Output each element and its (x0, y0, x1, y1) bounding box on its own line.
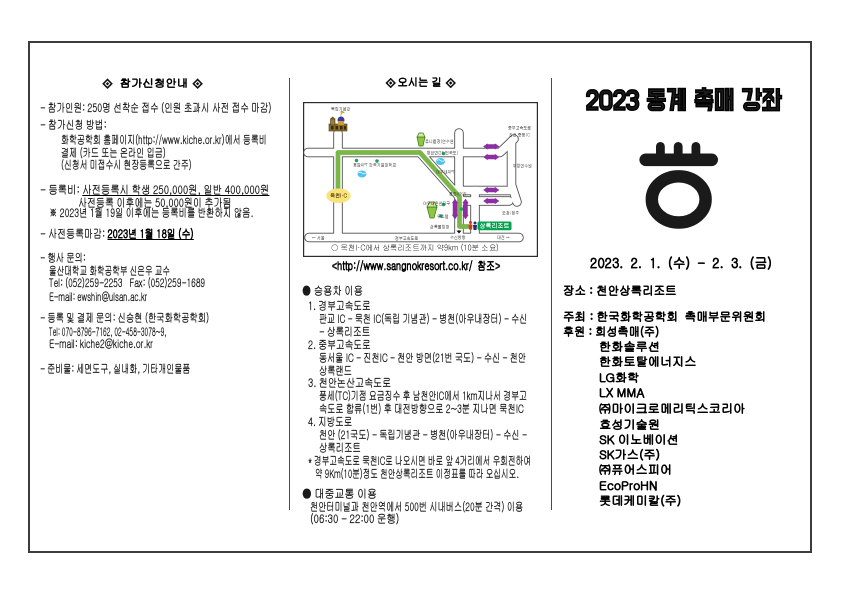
svg-text:병천면(21 번국도): 병천면(21 번국도) (427, 150, 459, 157)
svg-text:상록볼링장: 상록볼링장 (430, 224, 449, 231)
svg-text:경부고속도로: 경부고속도로 (395, 236, 419, 243)
svg-text:아우내APT: 아우내APT (436, 169, 455, 176)
svg-text:← 서울: ← 서울 (312, 235, 325, 242)
svg-text:우정연수원: 우정연수원 (513, 163, 532, 170)
svg-text:대전 →: 대전 → (497, 235, 510, 242)
svg-text:○ 묵천I·C에서 상록리조트까지 약9km (10분 소요: ○ 묵천I·C에서 상록리조트까지 약9km (10분 소요) (331, 242, 499, 253)
svg-text:동면4거리: 동면4거리 (449, 191, 467, 198)
svg-text:용암APT 한국기술대학교: 용암APT 한국기술대학교 (353, 162, 397, 169)
svg-text:유스텔: 유스텔 (437, 214, 449, 221)
svg-text:독립기념관: 독립기념관 (331, 106, 350, 113)
svg-text:수신방향: 수신방향 (450, 235, 466, 242)
svg-text:묵천I·C: 묵천I·C (330, 192, 347, 199)
svg-text:아우내온천지구: 아우내온천지구 (423, 201, 450, 208)
svg-text:상록리조트: 상록리조트 (480, 221, 510, 230)
svg-text:진천 증평 IC: 진천 증평 IC (509, 132, 530, 139)
svg-text:중부고속도로: 중부고속도로 (508, 125, 532, 132)
svg-text:휴니컬장(연수원: 휴니컬장(연수원 (425, 139, 454, 146)
svg-text:오창/청주: 오창/청주 (502, 210, 520, 217)
